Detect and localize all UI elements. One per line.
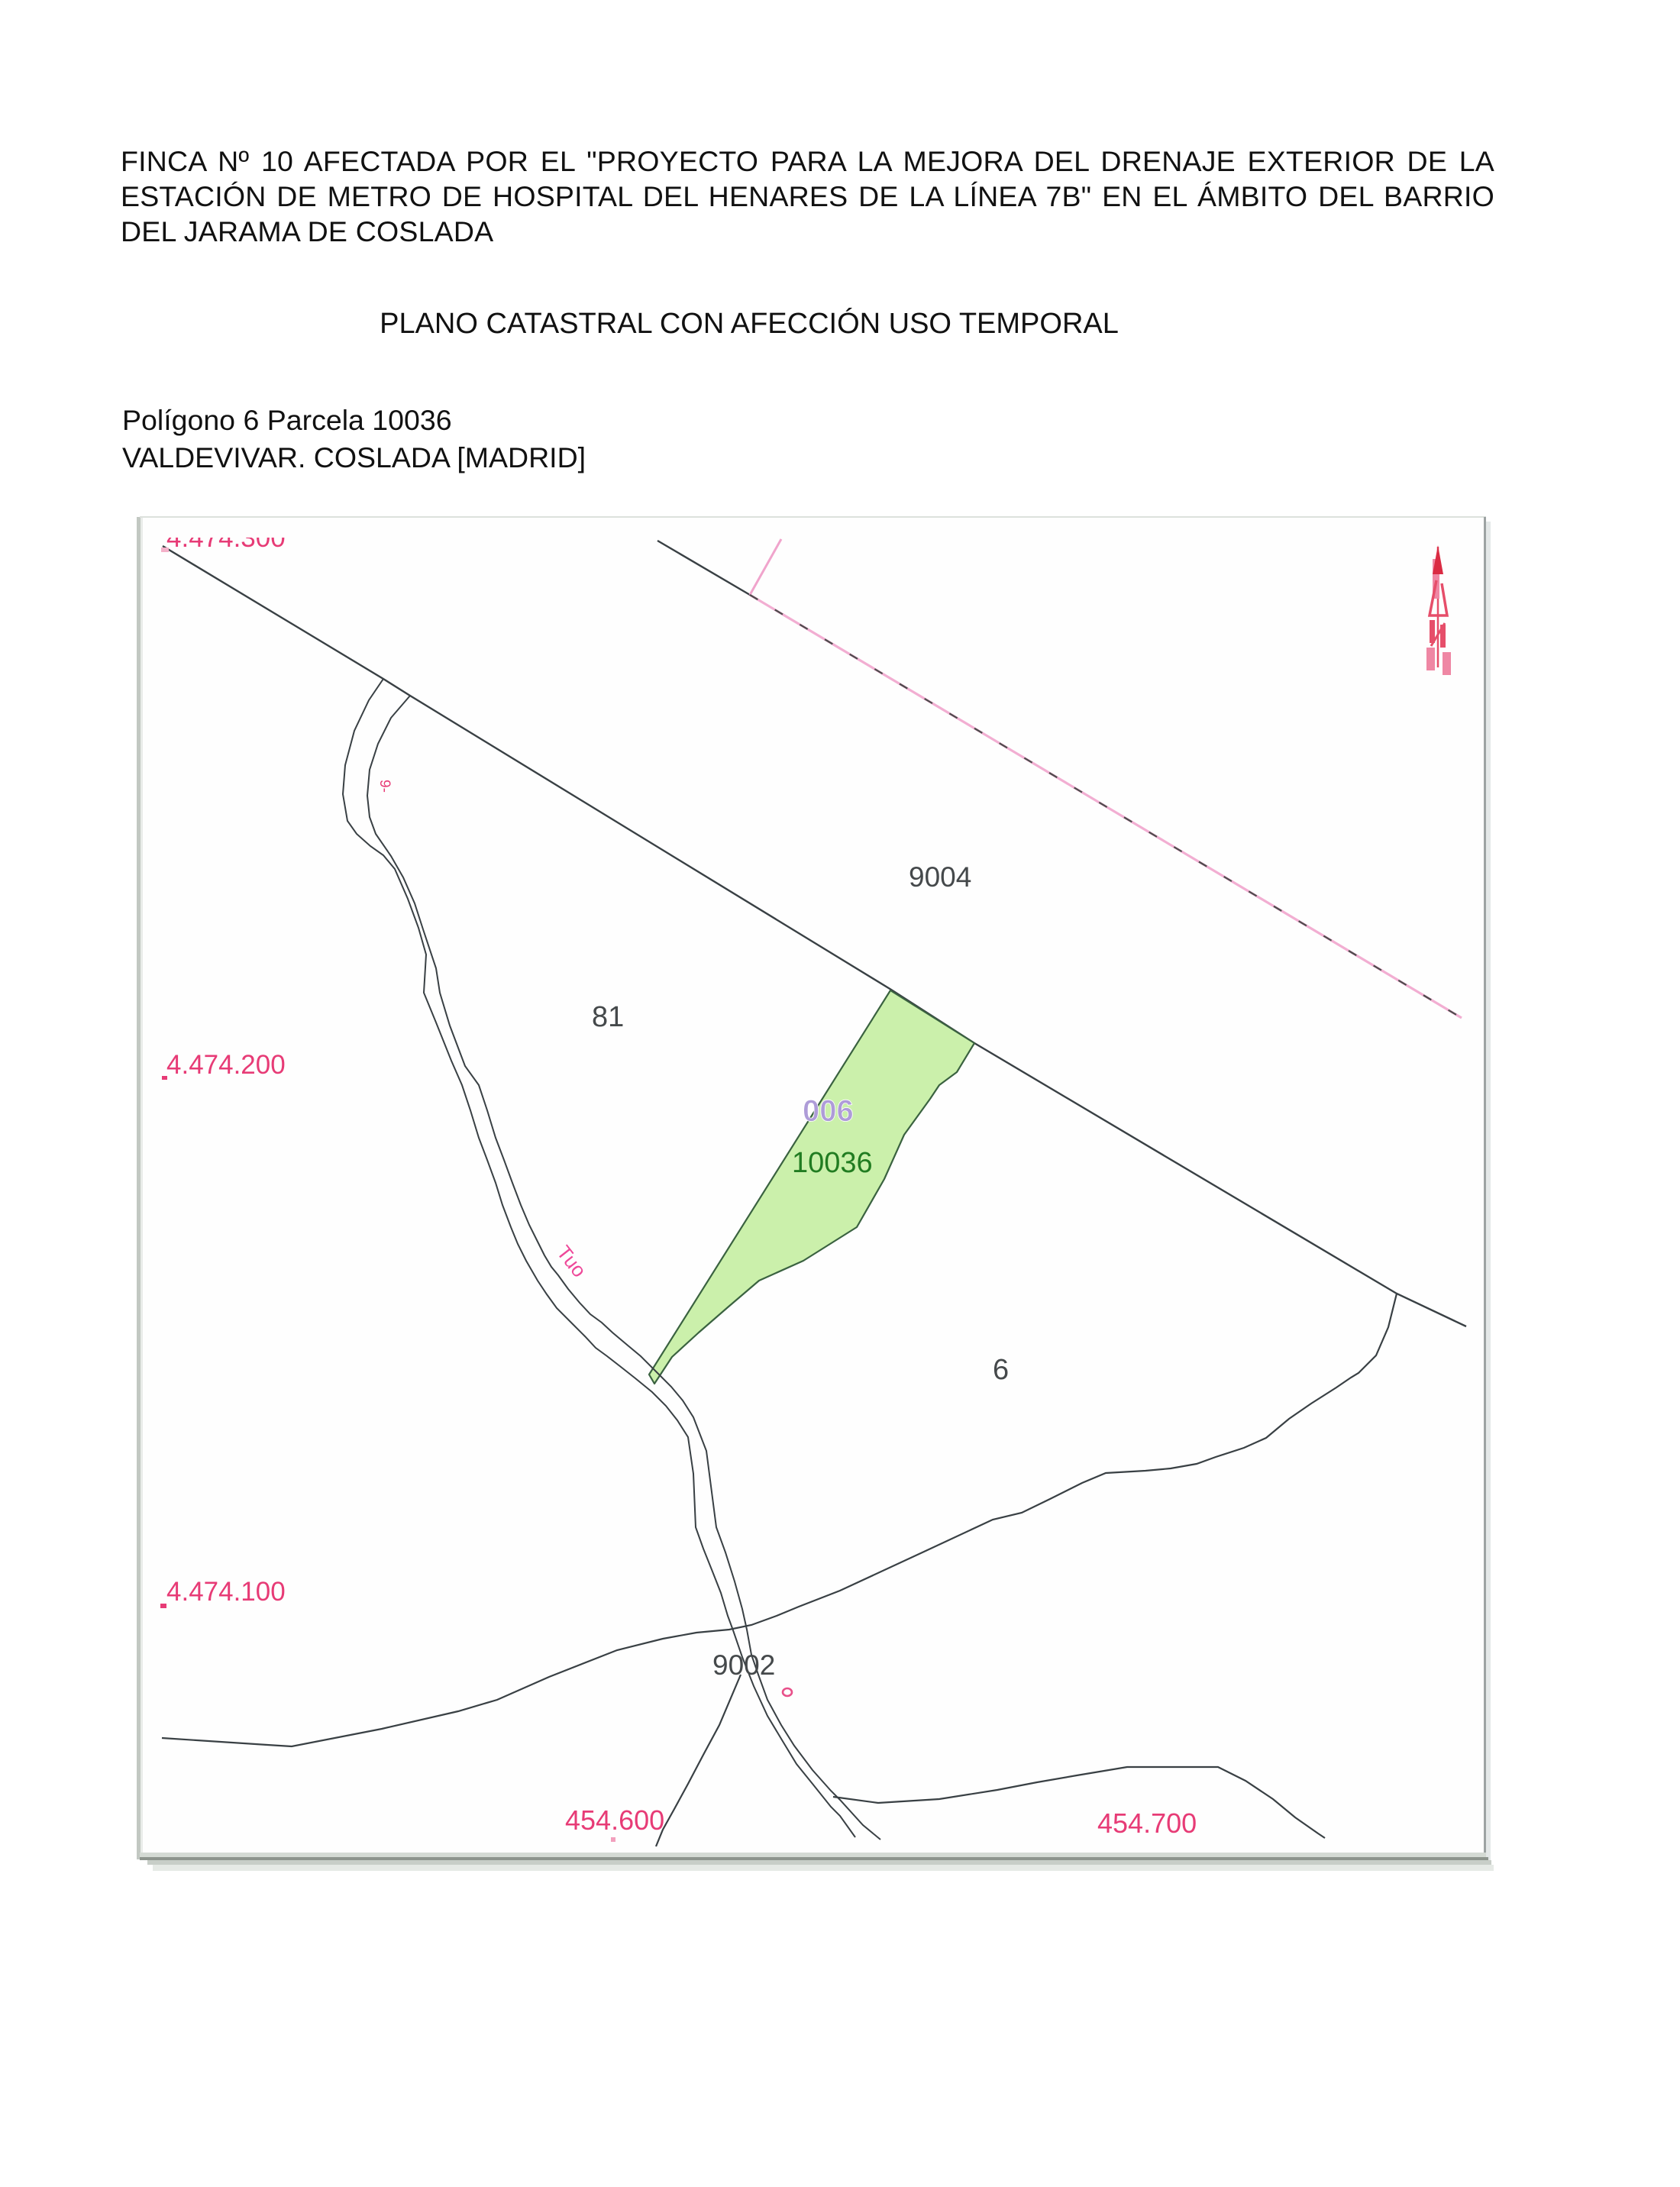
svg-text:454.700: 454.700 <box>1097 1807 1197 1839</box>
svg-text:006: 006 <box>803 1094 854 1128</box>
svg-text:454.600: 454.600 <box>565 1804 664 1836</box>
svg-text:81: 81 <box>592 1001 624 1033</box>
svg-text:10036: 10036 <box>792 1147 873 1179</box>
svg-text:9004: 9004 <box>909 861 971 893</box>
svg-text:9002: 9002 <box>712 1649 775 1681</box>
svg-text:6: 6 <box>993 1354 1009 1386</box>
svg-text:9-: 9- <box>376 780 393 793</box>
svg-text:4.474.200: 4.474.200 <box>166 1050 286 1080</box>
svg-text:4.474.100: 4.474.100 <box>166 1577 286 1607</box>
